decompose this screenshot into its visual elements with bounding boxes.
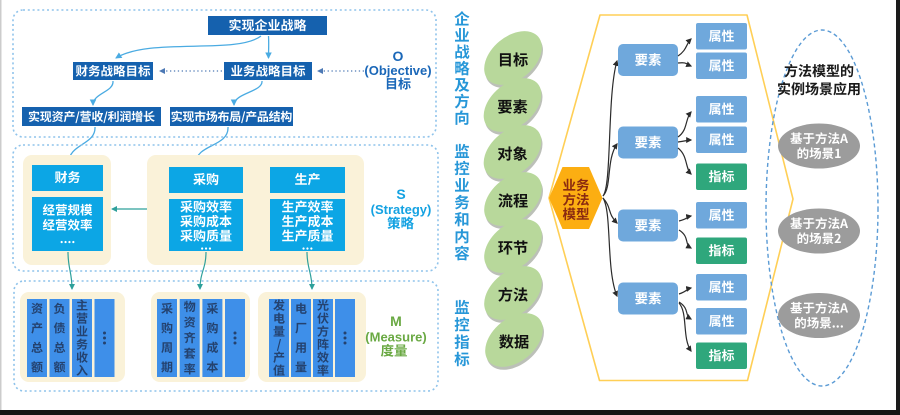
svg-text:(Strategy): (Strategy) [371,202,432,217]
svg-text:(Objective): (Objective) [364,63,431,78]
svg-text:O: O [393,48,404,64]
svg-text:M: M [390,313,402,329]
svg-text:S: S [396,186,405,202]
svg-text:(Measure): (Measure) [365,330,426,345]
